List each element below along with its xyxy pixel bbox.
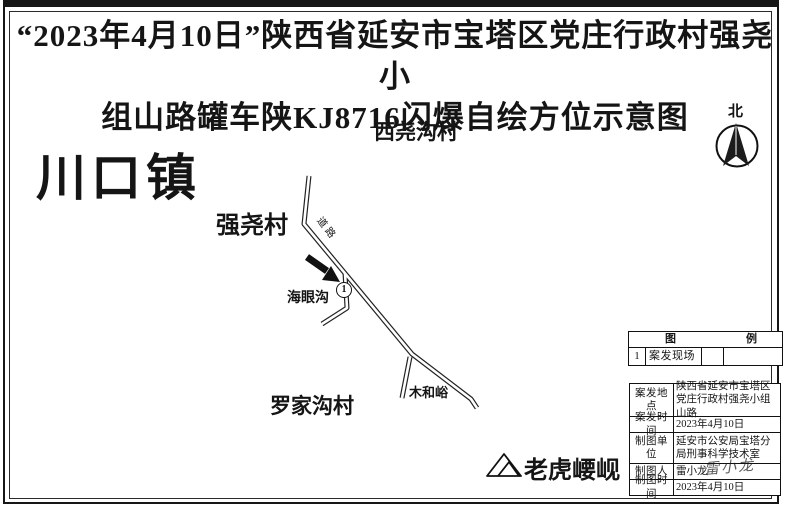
incident-site-marker: 1 [336, 282, 352, 298]
legend-row: 1 案发现场 [629, 348, 782, 365]
legend-row-number: 1 [629, 348, 646, 365]
legend-header-right: 例 [746, 332, 757, 347]
info-value-case-time: 2023年4月10日 [674, 417, 780, 432]
info-value-drawing-time: 2023年4月10日 [674, 480, 780, 495]
label-village-qiangyao: 强尧村 [216, 205, 288, 240]
info-row-drawing-time: 制图时间 2023年4月10日 [630, 480, 780, 495]
legend-table: 图 例 1 案发现场 [628, 331, 783, 366]
label-junction-muheyu: 木和峪 [409, 382, 448, 401]
info-row-case-time: 案发时间 2023年4月10日 [630, 417, 780, 433]
info-label-drawing-unit: 制图单位 [630, 433, 674, 463]
legend-row-desc: 案发现场 [646, 348, 702, 365]
info-label-case-time: 案发时间 [630, 417, 674, 432]
label-north: 北 [728, 100, 743, 121]
label-gully-haiyangou: 海眼沟 [287, 287, 329, 307]
info-value-location: 陕西省延安市宝塔区党庄行政村强尧小组山路 [674, 384, 780, 416]
scanned-map-page: “2023年4月10日”陕西省延安市宝塔区党庄行政村强尧小 组山路罐车陕KJ87… [0, 0, 800, 515]
label-village-xiyaogou: 西尧沟村 [374, 116, 458, 146]
legend-row-symbol [702, 348, 724, 365]
legend-header-left: 图 [665, 332, 676, 347]
map-title-line1: “2023年4月10日”陕西省延安市宝塔区党庄行政村强尧小 [12, 15, 778, 97]
label-village-luojiagou: 罗家沟村 [270, 390, 354, 420]
label-town-chuankouzhen: 川口镇 [36, 138, 201, 210]
legend-header: 图 例 [629, 332, 782, 348]
info-label-drawing-time: 制图时间 [630, 480, 674, 495]
label-mountain-laohuyaoxian: 老虎崾岘 [524, 450, 620, 485]
legend-row-note [724, 348, 782, 365]
drafter-signature: 雷小龙 [703, 454, 756, 479]
